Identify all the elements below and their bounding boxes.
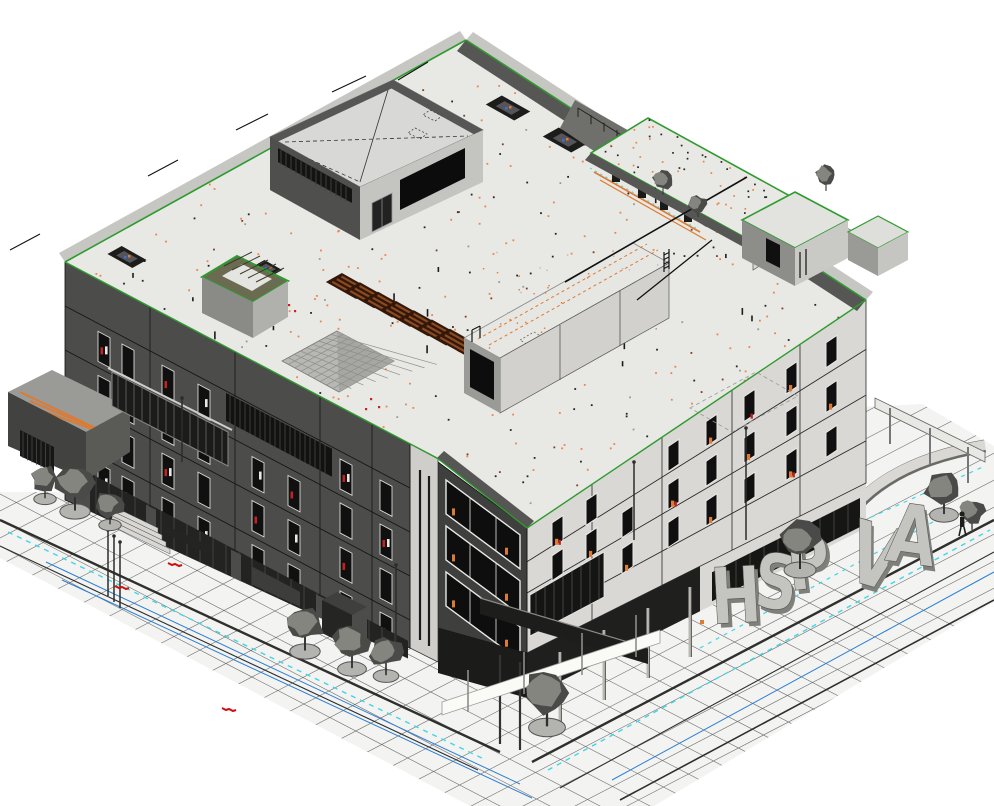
speckle-dot bbox=[730, 207, 732, 209]
window bbox=[380, 568, 392, 604]
speckle-dot bbox=[436, 250, 438, 252]
speckle-dot bbox=[390, 325, 392, 327]
pole-head bbox=[118, 540, 122, 544]
speckle-dot bbox=[104, 223, 106, 225]
speckle-dot bbox=[697, 255, 699, 257]
speckle-dot bbox=[194, 217, 196, 219]
speckle-dot bbox=[759, 320, 761, 322]
speckle-dot bbox=[629, 396, 631, 398]
red-speckle bbox=[378, 406, 380, 408]
speckle-dot bbox=[397, 321, 399, 323]
pole-head bbox=[632, 460, 636, 464]
speckle-dot bbox=[241, 346, 243, 348]
axonometric-building-rendering[interactable]: HHSSPPVVAA bbox=[0, 0, 994, 806]
speckle-dot bbox=[444, 296, 446, 298]
speckle-dot bbox=[747, 190, 749, 192]
speckle-dot bbox=[200, 204, 202, 206]
speckle-dot bbox=[129, 102, 131, 104]
speckle-dot bbox=[156, 108, 158, 110]
speckle-dot bbox=[219, 61, 221, 63]
speckle-dot bbox=[653, 49, 655, 51]
speckle-dot bbox=[839, 71, 841, 73]
speckle-dot bbox=[580, 461, 582, 463]
speckle-dot bbox=[274, 114, 276, 116]
speckle-dot bbox=[710, 172, 712, 174]
speckle-dot bbox=[209, 71, 211, 73]
speckle-dot bbox=[648, 126, 650, 128]
window-figure bbox=[709, 438, 712, 444]
speckle-dot bbox=[209, 184, 211, 186]
speckle-dot bbox=[228, 144, 230, 146]
speckle-dot bbox=[419, 287, 421, 289]
window-figure bbox=[709, 517, 712, 523]
window bbox=[288, 520, 300, 556]
skylight-glint bbox=[505, 107, 508, 110]
speckle-dot bbox=[510, 165, 512, 167]
window-figure bbox=[169, 468, 172, 476]
speckle-dot bbox=[643, 40, 645, 42]
window-figure bbox=[165, 469, 168, 476]
speckle-dot bbox=[571, 253, 573, 255]
speckle-dot bbox=[561, 447, 563, 449]
speckle-dot bbox=[541, 331, 542, 332]
roof-vent-pipe bbox=[742, 308, 744, 315]
speckle-dot bbox=[100, 200, 102, 202]
speckle-dot bbox=[320, 321, 322, 323]
window-figure bbox=[675, 502, 677, 507]
speckle-dot bbox=[732, 263, 734, 265]
speckle-dot bbox=[489, 347, 490, 348]
speckle-dot bbox=[499, 471, 501, 473]
speckle-dot bbox=[567, 254, 568, 255]
speckle-dot bbox=[207, 91, 209, 93]
person-head bbox=[959, 511, 964, 516]
speckle-dot bbox=[322, 269, 324, 271]
roof-vent-pipe bbox=[214, 331, 216, 339]
speckle-dot bbox=[530, 502, 532, 504]
speckle-dot bbox=[467, 329, 469, 331]
speckle-dot bbox=[762, 150, 764, 152]
window-figure bbox=[255, 517, 258, 524]
speckle-dot bbox=[186, 163, 188, 165]
window-figure bbox=[343, 563, 346, 570]
speckle-dot bbox=[168, 89, 170, 91]
speckle-dot bbox=[104, 195, 106, 197]
speckle-dot bbox=[687, 152, 689, 154]
speckle-dot bbox=[540, 212, 542, 214]
roof-vent-pipe bbox=[192, 297, 194, 301]
speckle-dot bbox=[725, 204, 727, 206]
speckle-dot bbox=[674, 366, 676, 368]
roof-vent-pipe bbox=[426, 345, 428, 353]
speckle-dot bbox=[241, 220, 243, 222]
speckle-dot bbox=[320, 250, 322, 252]
speckle-dot bbox=[863, 127, 865, 129]
speckle-dot bbox=[864, 175, 866, 177]
speckle-dot bbox=[693, 380, 695, 382]
speckle-dot bbox=[639, 156, 641, 158]
window bbox=[198, 472, 210, 508]
speckle-dot bbox=[652, 126, 654, 128]
speckle-dot bbox=[303, 86, 305, 88]
speckle-dot bbox=[654, 32, 656, 34]
red-annotation-mark bbox=[222, 708, 236, 711]
speckle-dot bbox=[525, 322, 526, 323]
speckle-dot bbox=[316, 295, 318, 297]
speckle-dot bbox=[662, 161, 664, 163]
speckle-dot bbox=[623, 75, 625, 77]
window bbox=[380, 524, 392, 560]
speckle-dot bbox=[838, 131, 840, 133]
speckle-dot bbox=[739, 370, 741, 372]
window bbox=[340, 459, 352, 495]
speckle-dot bbox=[309, 99, 311, 101]
speckle-dot bbox=[744, 208, 746, 210]
speckle-dot bbox=[244, 223, 246, 225]
speckle-dot bbox=[633, 147, 635, 149]
window bbox=[380, 480, 392, 516]
speckle-dot bbox=[308, 89, 310, 91]
speckle-dot bbox=[257, 253, 259, 255]
speckle-dot bbox=[497, 272, 498, 273]
speckle-dot bbox=[515, 443, 517, 445]
speckle-dot bbox=[774, 111, 776, 113]
speckle-dot bbox=[733, 195, 735, 197]
speckle-dot bbox=[289, 310, 291, 312]
speckle-dot bbox=[671, 399, 673, 401]
letter-base-marker bbox=[700, 620, 704, 624]
speckle-dot bbox=[814, 304, 816, 306]
speckle-dot bbox=[519, 289, 520, 290]
speckle-dot bbox=[171, 73, 173, 75]
speckle-dot bbox=[781, 54, 783, 56]
speckle-dot bbox=[572, 83, 574, 85]
speckle-dot bbox=[678, 55, 680, 57]
speckle-dot bbox=[656, 349, 658, 351]
speckle-dot bbox=[716, 255, 718, 257]
speckle-dot bbox=[584, 235, 586, 237]
speckle-dot bbox=[357, 267, 359, 269]
speckle-dot bbox=[396, 416, 398, 418]
window-figure bbox=[789, 471, 792, 477]
speckle-dot bbox=[703, 161, 705, 163]
speckle-dot bbox=[469, 272, 471, 274]
speckle-dot bbox=[678, 41, 680, 43]
speckle-dot bbox=[788, 188, 790, 190]
speckle-dot bbox=[265, 345, 267, 347]
speckle-dot bbox=[165, 241, 167, 243]
speckle-dot bbox=[516, 275, 518, 277]
speckle-dot bbox=[264, 74, 266, 76]
speckle-dot bbox=[702, 154, 704, 156]
window-figure bbox=[452, 600, 455, 607]
speckle-dot bbox=[633, 203, 635, 205]
speckle-dot bbox=[782, 308, 784, 310]
window-figure bbox=[559, 540, 561, 545]
speckle-dot bbox=[764, 196, 766, 198]
speckle-dot bbox=[134, 100, 136, 102]
speckle-dot bbox=[768, 160, 770, 162]
window-figure bbox=[789, 385, 792, 391]
speckle-dot bbox=[486, 163, 488, 165]
speckle-dot bbox=[502, 143, 504, 145]
speckle-dot bbox=[93, 48, 95, 50]
speckle-dot bbox=[471, 194, 473, 196]
window-figure bbox=[291, 492, 294, 499]
speckle-dot bbox=[454, 329, 456, 331]
speckle-dot bbox=[649, 119, 651, 121]
speckle-dot bbox=[830, 76, 832, 78]
speckle-dot bbox=[467, 453, 469, 455]
red-speckle bbox=[370, 398, 372, 400]
red-speckle bbox=[294, 310, 296, 312]
tree bbox=[96, 493, 125, 531]
speckle-dot bbox=[581, 448, 583, 450]
speckle-dot bbox=[633, 165, 635, 167]
speckle-dot bbox=[857, 81, 859, 83]
speckle-dot bbox=[137, 31, 139, 33]
window-figure bbox=[505, 594, 508, 601]
speckle-dot bbox=[826, 71, 828, 73]
window-figure bbox=[101, 347, 104, 354]
speckle-dot bbox=[458, 211, 460, 213]
window bbox=[340, 547, 352, 583]
speckle-dot bbox=[754, 184, 756, 186]
speckle-dot bbox=[626, 413, 628, 415]
speckle-dot bbox=[765, 305, 767, 307]
speckle-dot bbox=[326, 304, 328, 306]
speckle-dot bbox=[633, 429, 635, 431]
speckle-dot bbox=[139, 126, 141, 128]
speckle-dot bbox=[265, 213, 267, 215]
speckle-dot bbox=[123, 283, 125, 285]
speckle-dot bbox=[626, 219, 628, 221]
tree bbox=[287, 608, 324, 659]
speckle-dot bbox=[371, 248, 373, 250]
roof-vent-pipe bbox=[132, 273, 134, 278]
speckle-dot bbox=[379, 281, 381, 283]
speckle-dot bbox=[514, 92, 516, 94]
speckle-dot bbox=[605, 151, 607, 153]
speckle-dot bbox=[208, 265, 210, 267]
speckle-dot bbox=[614, 232, 616, 234]
speckle-dot bbox=[495, 475, 497, 477]
person-body bbox=[960, 517, 964, 527]
speckle-dot bbox=[805, 186, 807, 188]
speckle-dot bbox=[248, 213, 250, 215]
speckle-dot bbox=[687, 158, 689, 160]
speckle-dot bbox=[158, 175, 160, 177]
speckle-dot bbox=[735, 36, 737, 38]
speckle-dot bbox=[561, 302, 562, 303]
window-figure bbox=[829, 404, 832, 410]
speckle-dot bbox=[691, 229, 693, 231]
speckle-dot bbox=[376, 66, 378, 68]
speckle-dot bbox=[552, 256, 554, 258]
speckle-dot bbox=[869, 102, 871, 104]
speckle-dot bbox=[652, 171, 654, 173]
speckle-dot bbox=[635, 142, 637, 144]
speckle-dot bbox=[505, 242, 507, 244]
speckle-dot bbox=[763, 40, 765, 42]
speckle-dot bbox=[588, 273, 589, 274]
speckle-dot bbox=[717, 334, 719, 336]
speckle-dot bbox=[483, 268, 484, 269]
speckle-dot bbox=[741, 159, 743, 161]
stair-tower-face bbox=[410, 444, 438, 662]
speckle-dot bbox=[435, 395, 437, 397]
speckle-dot bbox=[666, 84, 668, 86]
speckle-dot bbox=[701, 391, 703, 393]
speckle-dot bbox=[466, 456, 468, 458]
speckle-dot bbox=[324, 299, 326, 301]
speckle-dot bbox=[255, 108, 257, 110]
speckle-dot bbox=[787, 43, 789, 45]
red-speckle bbox=[365, 408, 367, 410]
speckle-dot bbox=[584, 384, 586, 386]
speckle-dot bbox=[555, 233, 557, 235]
speckle-dot bbox=[617, 154, 619, 156]
speckle-dot bbox=[244, 145, 246, 147]
speckle-dot bbox=[637, 166, 639, 168]
speckle-dot bbox=[409, 383, 411, 385]
speckle-dot bbox=[612, 250, 613, 251]
speckle-dot bbox=[784, 50, 786, 52]
speckle-dot bbox=[144, 201, 146, 203]
speckle-dot bbox=[387, 36, 389, 38]
speckle-dot bbox=[610, 447, 612, 449]
window-figure bbox=[452, 554, 455, 561]
speckle-dot bbox=[646, 435, 648, 437]
speckle-dot bbox=[681, 145, 683, 147]
speckle-dot bbox=[467, 246, 469, 248]
speckle-dot bbox=[679, 167, 681, 169]
speckle-dot bbox=[573, 157, 575, 159]
speckle-dot bbox=[610, 145, 612, 147]
speckle-dot bbox=[526, 182, 528, 184]
speckle-dot bbox=[539, 267, 540, 268]
speckle-dot bbox=[526, 288, 528, 290]
speckle-dot bbox=[722, 379, 724, 381]
speckle-dot bbox=[163, 102, 165, 104]
speckle-dot bbox=[682, 85, 684, 87]
speckle-dot bbox=[490, 297, 492, 299]
speckle-dot bbox=[499, 153, 501, 155]
speckle-dot bbox=[744, 212, 746, 214]
speckle-dot bbox=[290, 232, 292, 234]
speckle-dot bbox=[809, 43, 811, 45]
speckle-dot bbox=[285, 104, 287, 106]
speckle-dot bbox=[672, 152, 674, 154]
speckle-dot bbox=[533, 293, 534, 294]
speckle-dot bbox=[525, 129, 527, 131]
pole-head bbox=[744, 426, 748, 430]
leader-tick bbox=[236, 114, 268, 130]
speckle-dot bbox=[649, 138, 651, 140]
speckle-dot bbox=[547, 287, 548, 288]
speckle-dot bbox=[766, 316, 768, 318]
speckle-dot bbox=[864, 173, 866, 175]
speckle-dot bbox=[319, 258, 321, 260]
speckle-dot bbox=[653, 249, 655, 251]
speckle-dot bbox=[763, 190, 765, 192]
stair-tower bbox=[410, 444, 438, 662]
window bbox=[252, 501, 264, 537]
speckle-dot bbox=[530, 273, 532, 275]
window-figure bbox=[589, 551, 592, 557]
skylight-glint bbox=[509, 106, 512, 109]
window bbox=[98, 331, 110, 367]
speckle-dot bbox=[618, 163, 620, 165]
speckle-dot bbox=[498, 85, 500, 87]
speckle-dot bbox=[574, 388, 576, 390]
speckle-dot bbox=[590, 62, 592, 64]
speckle-dot bbox=[681, 321, 683, 323]
speckle-dot bbox=[567, 176, 569, 178]
speckle-dot bbox=[422, 89, 424, 91]
pole-head bbox=[394, 563, 398, 567]
speckle-dot bbox=[763, 148, 765, 150]
speckle-dot bbox=[559, 182, 561, 184]
speckle-dot bbox=[216, 37, 218, 39]
speckle-dot bbox=[164, 308, 166, 310]
speckle-dot bbox=[484, 206, 486, 208]
window-figure bbox=[671, 501, 674, 507]
speckle-dot bbox=[142, 280, 144, 282]
speckle-dot bbox=[736, 365, 738, 367]
speckle-dot bbox=[333, 396, 335, 398]
speckle-dot bbox=[261, 122, 263, 124]
speckle-dot bbox=[627, 193, 629, 195]
speckle-dot bbox=[548, 215, 550, 217]
speckle-dot bbox=[196, 269, 198, 271]
speckle-dot bbox=[784, 345, 786, 347]
window-figure bbox=[387, 539, 390, 547]
speckle-dot bbox=[773, 292, 775, 294]
speckle-dot bbox=[91, 147, 93, 149]
window bbox=[162, 453, 174, 489]
roof-vent-pipe bbox=[725, 254, 727, 258]
skylight-glint bbox=[562, 139, 565, 142]
speckle-dot bbox=[296, 376, 298, 378]
speckle-dot bbox=[360, 65, 362, 67]
speckle-dot bbox=[314, 298, 316, 300]
speckle-dot bbox=[714, 64, 716, 66]
speckle-dot bbox=[683, 168, 685, 170]
model-viewport[interactable]: HHSSPPVVAA bbox=[0, 0, 994, 806]
window-figure bbox=[751, 414, 753, 419]
speckle-dot bbox=[549, 146, 551, 148]
speckle-dot bbox=[481, 119, 483, 121]
speckle-dot bbox=[195, 172, 197, 174]
speckle-dot bbox=[337, 231, 339, 233]
skylight-glint bbox=[124, 256, 127, 259]
window-figure bbox=[105, 346, 108, 354]
speckle-dot bbox=[836, 81, 838, 83]
speckle-dot bbox=[246, 341, 248, 343]
speckle-dot bbox=[381, 258, 383, 260]
window bbox=[252, 457, 264, 493]
speckle-dot bbox=[492, 414, 494, 416]
speckle-dot bbox=[650, 93, 652, 95]
speckle-dot bbox=[512, 239, 514, 241]
window-figure bbox=[452, 508, 455, 515]
speckle-dot bbox=[338, 398, 340, 400]
roof-vent-pipe bbox=[751, 316, 753, 322]
speckle-dot bbox=[587, 277, 588, 278]
window-figure bbox=[505, 548, 508, 555]
speckle-dot bbox=[805, 119, 807, 121]
